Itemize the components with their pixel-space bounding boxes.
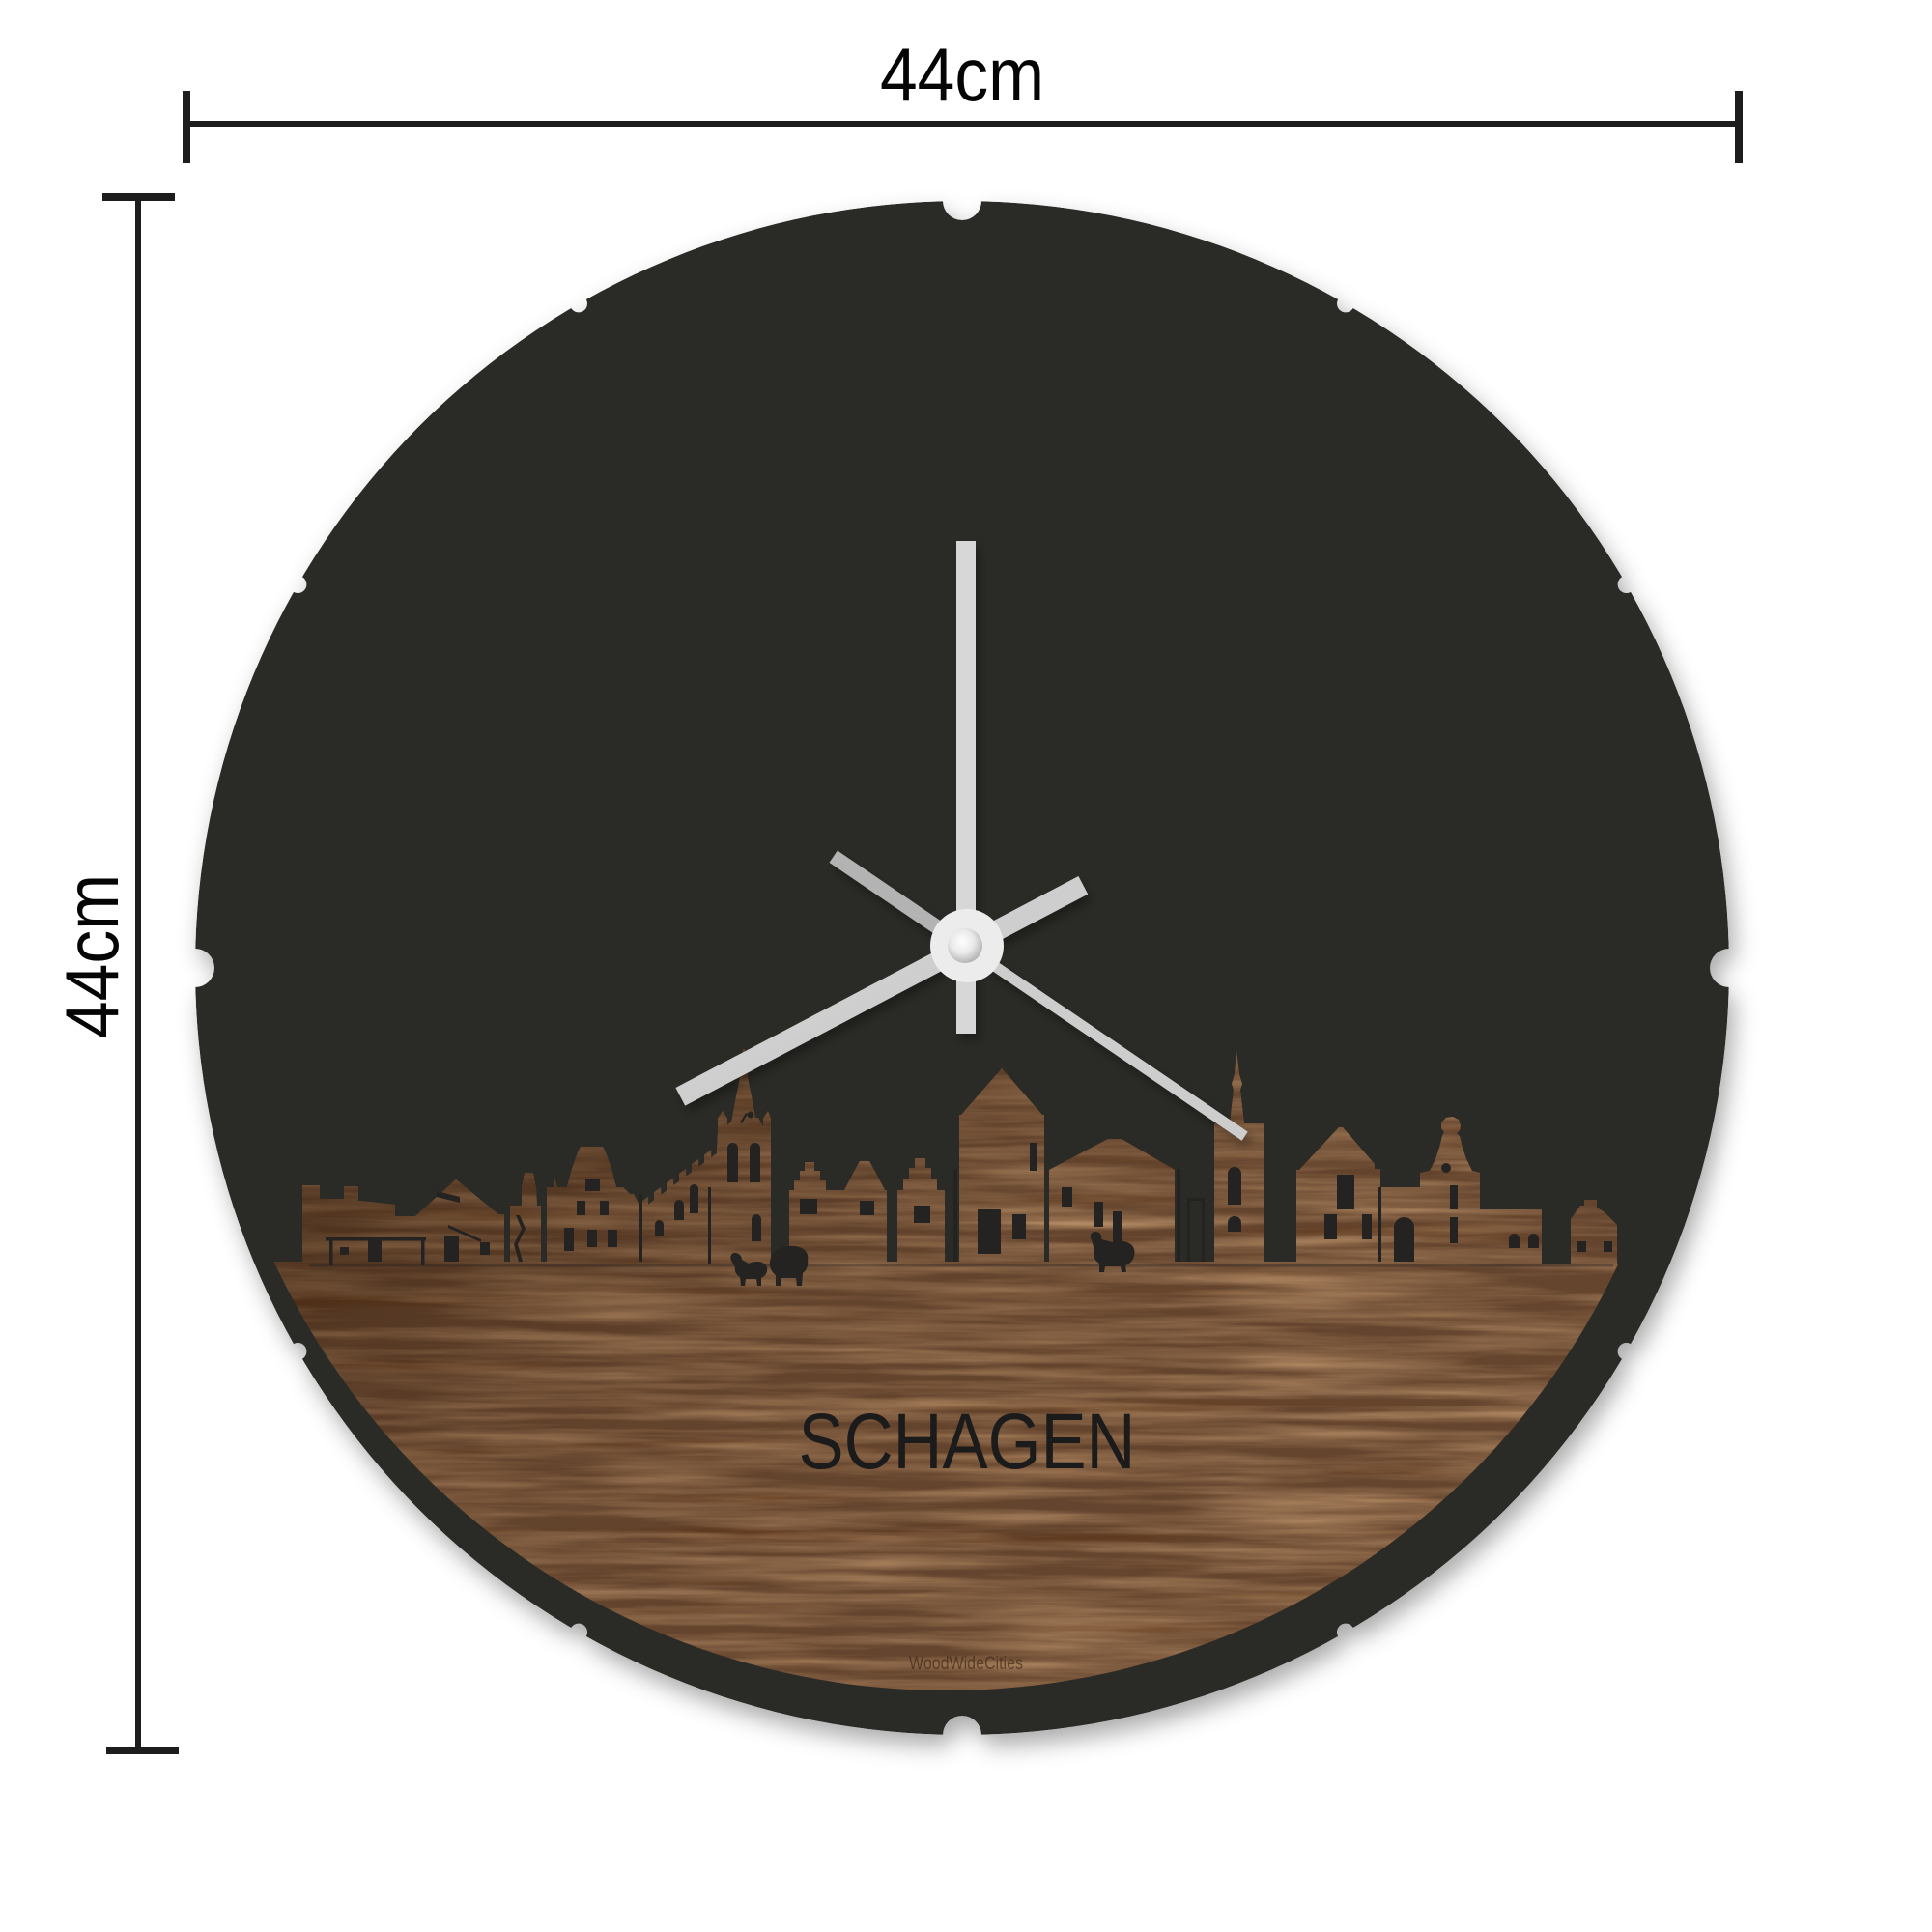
svg-text:SCHAGEN: SCHAGEN (799, 1398, 1136, 1486)
svg-text:44cm: 44cm (880, 32, 1044, 117)
svg-text:WoodWideCities: WoodWideCities (909, 1654, 1023, 1674)
svg-text:44cm: 44cm (49, 874, 134, 1038)
